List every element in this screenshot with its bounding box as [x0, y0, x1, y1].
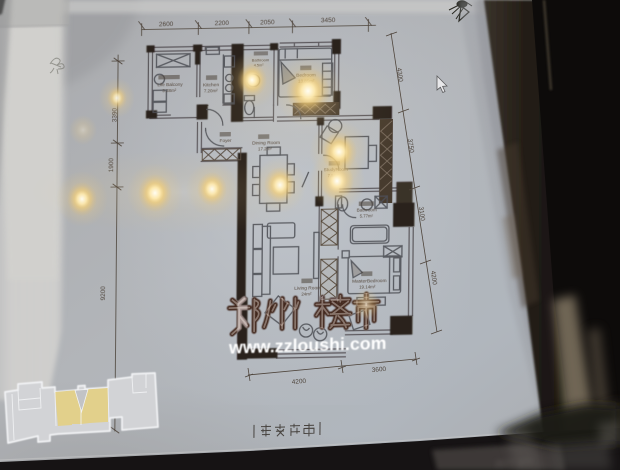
svg-text:3600: 3600: [372, 366, 387, 374]
svg-text:5.77m²: 5.77m²: [360, 213, 374, 218]
svg-text:Life Balcony: Life Balcony: [157, 82, 183, 87]
svg-text:3450: 3450: [321, 17, 336, 24]
svg-text:2050: 2050: [260, 19, 275, 26]
svg-text:Bathroom: Bathroom: [357, 207, 377, 212]
svg-text:9200: 9200: [100, 286, 107, 301]
svg-text:2600: 2600: [159, 21, 174, 28]
svg-text:19.14m²: 19.14m²: [359, 284, 376, 289]
svg-text:2200: 2200: [215, 20, 230, 27]
svg-text:4200: 4200: [292, 378, 307, 386]
svg-text:3.38m²: 3.38m²: [162, 88, 176, 93]
svg-text:24m²: 24m²: [301, 291, 312, 296]
